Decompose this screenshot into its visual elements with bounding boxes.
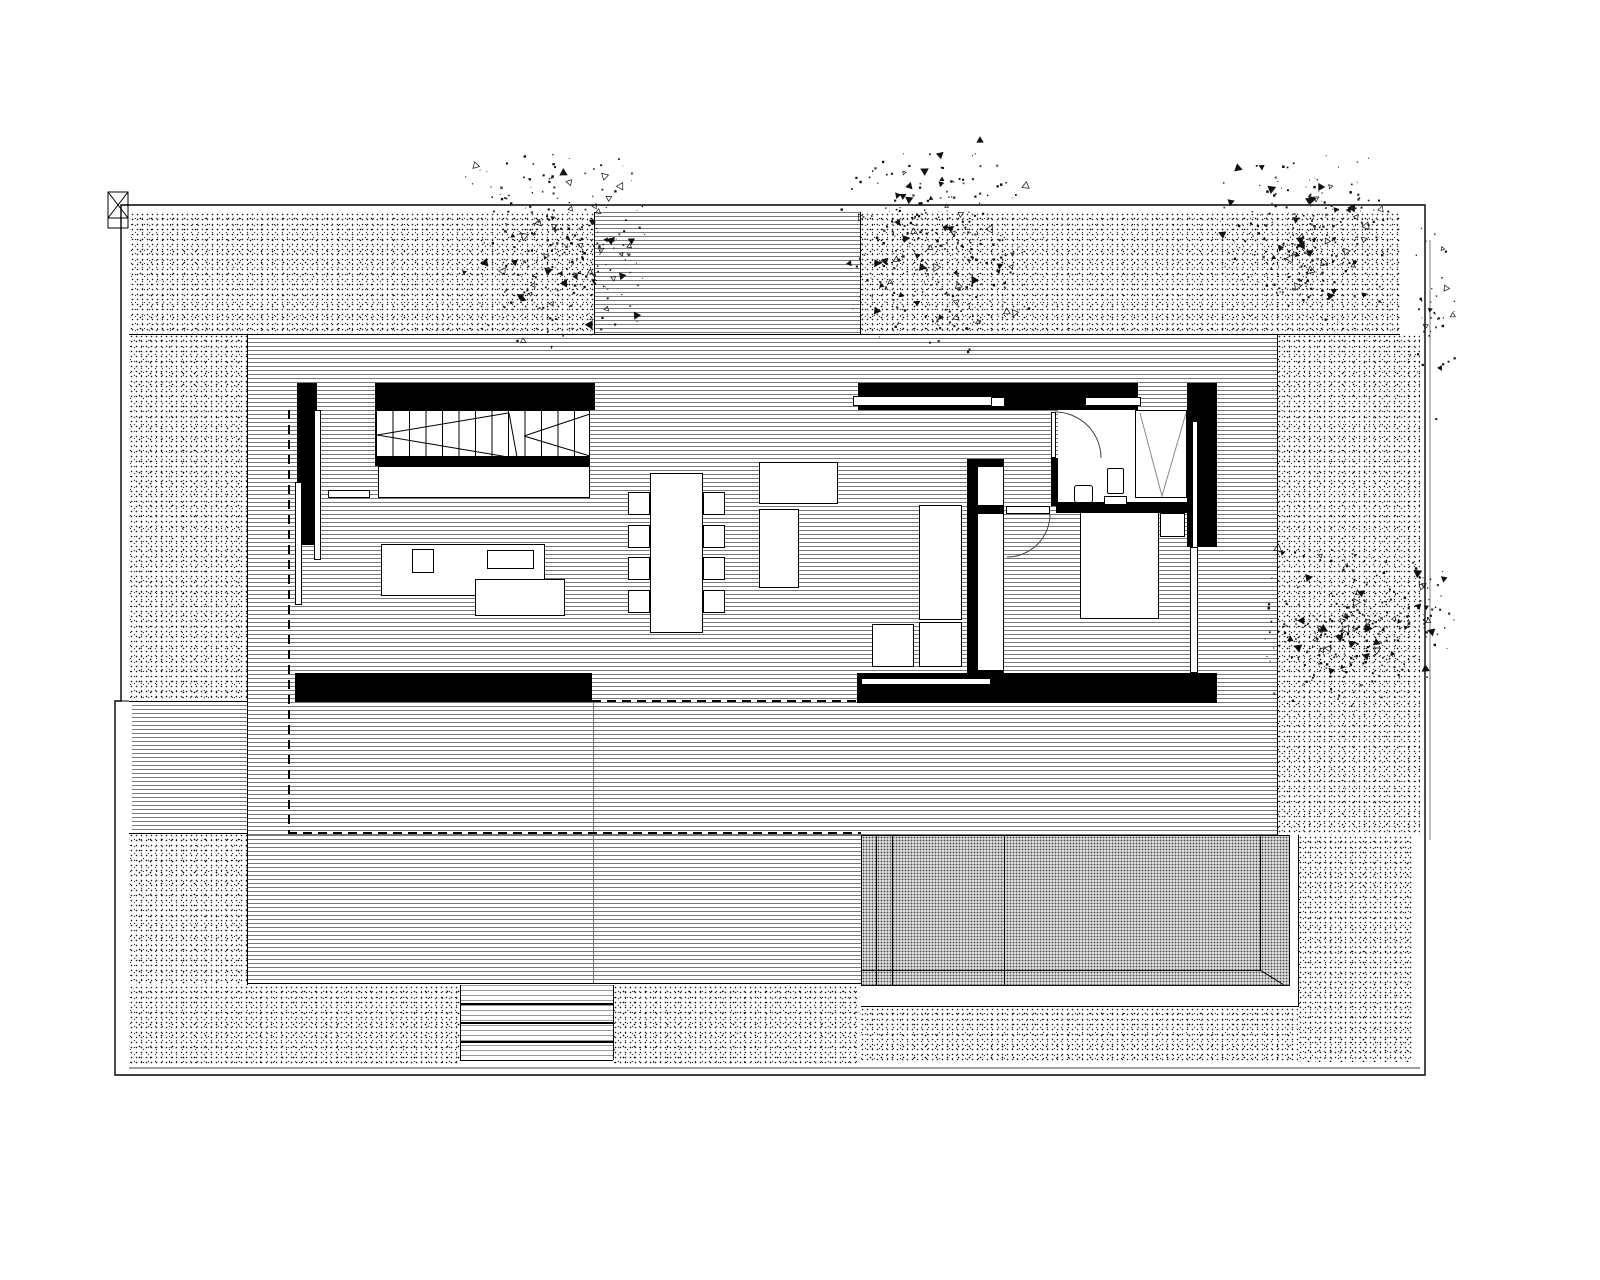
- living-chaise: [475, 579, 565, 616]
- site-gravel-right-lower: [1298, 835, 1413, 1062]
- steps-left-edge: [460, 985, 461, 1060]
- dining-chair-1: [628, 492, 650, 515]
- window-left-west: [295, 482, 302, 605]
- pool-deck-right: [1290, 835, 1298, 1007]
- dining-table: [650, 473, 703, 633]
- wall-shelf: [328, 490, 370, 498]
- wall-bath-west: [1051, 458, 1058, 506]
- entry-left-edge: [594, 212, 595, 334]
- toilet-tank: [1104, 496, 1127, 505]
- bed: [1080, 512, 1159, 619]
- deck-terrace-lower: [247, 835, 861, 983]
- overhang-dash-south: [288, 832, 861, 834]
- bath-door-leaf: [1051, 412, 1056, 458]
- dining-chair-7: [703, 557, 725, 580]
- site-gravel-top-right: [860, 212, 1400, 334]
- kitchen-table-b: [919, 622, 962, 667]
- steps-bottom-edge: [460, 1060, 613, 1061]
- living-side-table: [412, 549, 434, 573]
- deck-bottom-edge: [247, 983, 861, 984]
- living-coffee-table: [487, 550, 534, 569]
- kitchen-cabinet-upper: [977, 466, 1004, 506]
- pool-lane-line-1: [876, 836, 877, 985]
- window-bedroom-east: [1190, 547, 1198, 673]
- site-gravel-top-left: [130, 212, 594, 334]
- deck-left-strip: [132, 701, 247, 833]
- wall-under-stairs: [375, 457, 590, 466]
- bedside-table: [1160, 513, 1185, 537]
- window-right-south: [861, 678, 991, 685]
- glazing-dash-mid: [592, 700, 858, 702]
- deck-entry-path: [594, 212, 860, 334]
- pool-lane-line-2: [892, 836, 893, 985]
- deck-top-edge: [129, 334, 1400, 335]
- site-gravel-bottom-right: [860, 1007, 1298, 1062]
- terrace-sofa-side: [759, 509, 799, 588]
- dining-chair-4: [628, 590, 650, 613]
- wall-kitchen-spine: [967, 459, 977, 677]
- entry-right-edge: [860, 212, 861, 334]
- corner-post-marker: [108, 192, 128, 228]
- bedroom-door-leaf: [1006, 506, 1050, 514]
- sink: [1074, 485, 1093, 503]
- wardrobe: [1135, 410, 1187, 498]
- step-edge-3: [460, 1041, 613, 1043]
- pool-frame-bottom: [861, 1006, 1299, 1007]
- pool-lane-line-3: [1004, 836, 1005, 985]
- toilet: [1107, 468, 1124, 494]
- floor-plan: [0, 0, 1600, 1280]
- dining-chair-5: [703, 492, 725, 515]
- terrace-sofa-top: [759, 462, 838, 504]
- kitchen-island: [919, 505, 962, 620]
- window-right-east: [1192, 421, 1198, 551]
- site-gravel-right: [1277, 334, 1420, 835]
- pool-frame-right: [1298, 835, 1299, 1007]
- kitchen-table-a: [872, 624, 914, 667]
- site-gravel-left: [129, 334, 247, 701]
- kitchen-cabinet-lower: [977, 513, 1004, 671]
- pool-deck-bottom: [861, 986, 1298, 1007]
- mullion-left-west: [314, 410, 321, 560]
- dining-chair-2: [628, 525, 650, 548]
- window-sill-bath: [1085, 397, 1141, 406]
- step-edge-2: [460, 1022, 613, 1024]
- steps-right-edge: [613, 985, 614, 1060]
- dining-chair-6: [703, 525, 725, 548]
- left-strip-top-edge: [129, 701, 247, 702]
- overhang-dash-west: [288, 410, 290, 833]
- stair-landing: [378, 466, 590, 498]
- site-gravel-left-lower: [129, 833, 248, 985]
- pool-water: [861, 835, 1290, 986]
- deck-separator: [593, 703, 594, 983]
- pool-step-line: [1260, 836, 1261, 970]
- window-sill-kitchen: [853, 396, 993, 406]
- left-strip-bottom-edge: [129, 833, 248, 834]
- dining-chair-8: [703, 590, 725, 613]
- window-sill-square: [991, 397, 1005, 407]
- wall-left-south: [295, 673, 592, 702]
- stairs: [375, 410, 590, 457]
- site-gravel-bottom-left: [129, 985, 460, 1065]
- step-edge-1: [460, 1003, 613, 1005]
- dining-chair-3: [628, 557, 650, 580]
- site-gravel-bottom-mid: [613, 985, 860, 1065]
- pool-bottom-line: [861, 970, 1261, 971]
- deck-right-edge: [1277, 334, 1278, 835]
- deck-left-edge: [247, 334, 248, 985]
- wall-left-north: [375, 383, 595, 410]
